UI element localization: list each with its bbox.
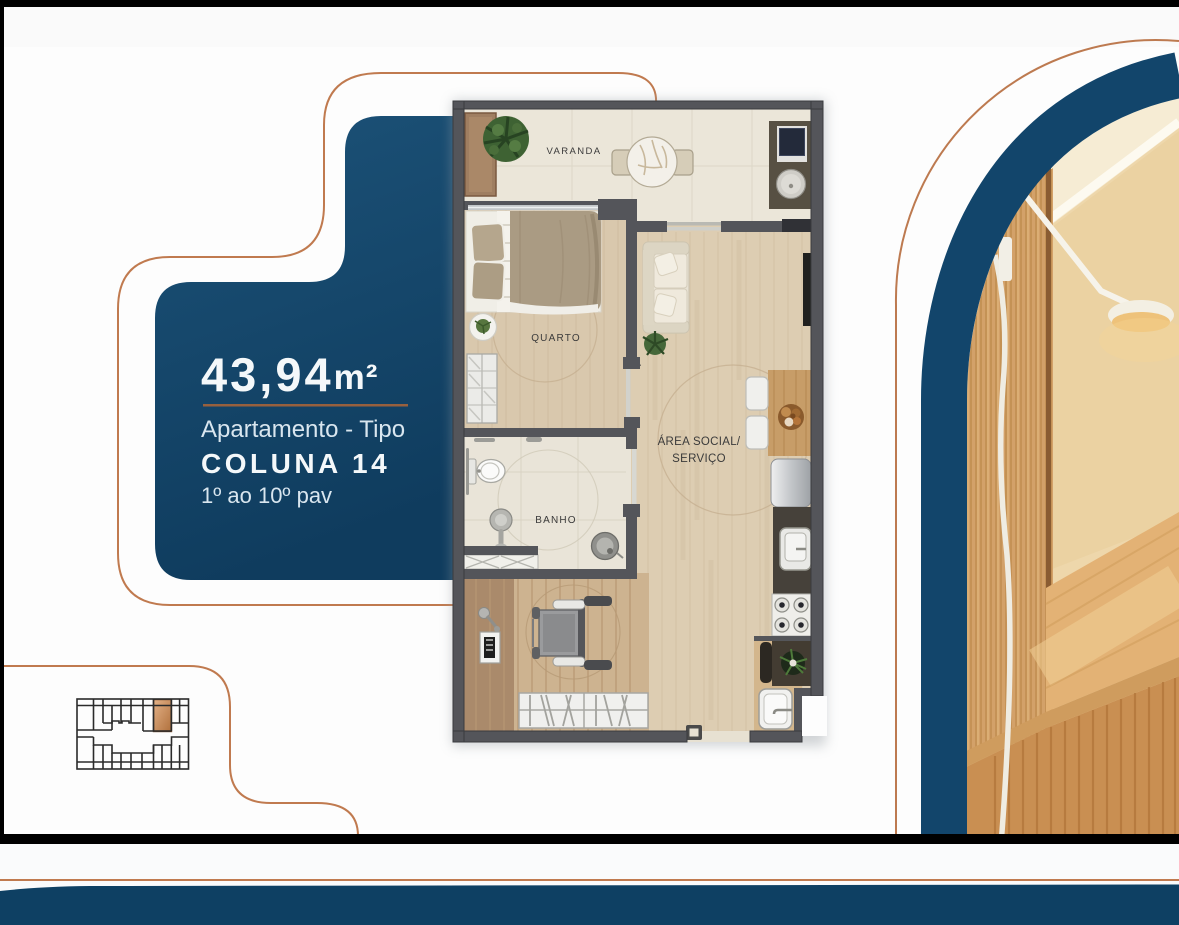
- svg-text:1º ao 10º pav: 1º ao 10º pav: [201, 483, 332, 508]
- svg-text:VARANDA: VARANDA: [546, 146, 601, 157]
- svg-text:SERVIÇO: SERVIÇO: [672, 453, 726, 465]
- svg-text:ÁREA SOCIAL/: ÁREA SOCIAL/: [658, 435, 741, 448]
- svg-text:BANHO: BANHO: [535, 515, 577, 526]
- svg-text:COLUNA 14: COLUNA 14: [201, 448, 390, 479]
- svg-text:Apartamento - Tipo: Apartamento - Tipo: [201, 416, 405, 443]
- svg-text:QUARTO: QUARTO: [531, 333, 581, 344]
